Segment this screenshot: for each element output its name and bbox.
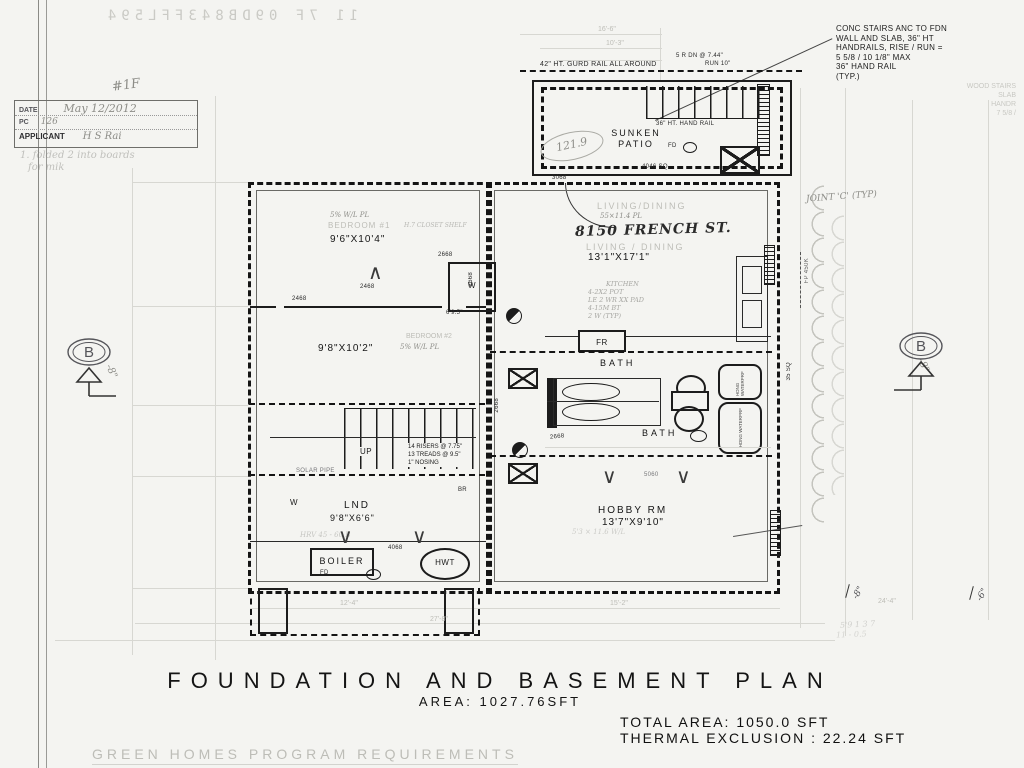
thermal-exclusion: THERMAL EXCLUSION : 22.24 SFT (620, 730, 906, 746)
bed1-closet-note: H.7 CLOSET SHELF (404, 222, 467, 229)
sink (562, 403, 620, 421)
door-tag-2668-vert: 2668 (494, 398, 500, 413)
faint-line: SLAB (946, 91, 1016, 100)
living-dim: 13'1"X17'1" (588, 252, 650, 263)
dim-label: 16'-6" (598, 26, 616, 33)
grid-line (132, 168, 133, 655)
fridge-label: FR (596, 338, 608, 347)
stamp-note: 1. folded 2 into boards (20, 150, 135, 161)
partition-wall (250, 306, 276, 308)
hwt-label: HWT (435, 558, 455, 567)
total-area: TOTAL AREA: 1050.0 SFT (620, 714, 829, 730)
floor-drain (683, 142, 697, 153)
dim-line-bottom (135, 623, 825, 624)
kitchen-note-line: 4-2X2 POT (588, 288, 644, 296)
bath2-label: BATH (642, 428, 677, 438)
note-line: (TYP.) (836, 72, 1011, 82)
dim-label: 27'-8" (430, 616, 448, 623)
faint-corner-note: WOOD STAIRS SLAB HANDR 7 5/8 / (946, 82, 1016, 118)
dim-label: 10'-3" (606, 40, 624, 47)
stair-notes: 14 RISERS @ 7.75" 13 TREADS @ 9.5" 1" NO… (406, 443, 464, 467)
kitchen-note-line: LE 2 WR XX PAD (588, 296, 644, 304)
closet-w: W (448, 262, 496, 312)
stamp-note: for mik (28, 162, 64, 173)
bed1-pencil-note: 5% W/L PL (330, 211, 369, 219)
hobby-dim: 13'7"X9'10" (602, 517, 664, 528)
note-line: 36" HAND RAIL (836, 62, 1011, 72)
room-label-sunken-patio: SUNKEN PATIO (596, 128, 676, 150)
bath1-label: BATH (600, 358, 635, 368)
dim-line-top (520, 34, 662, 35)
hobby-wall (490, 455, 772, 457)
footing-line (478, 588, 480, 636)
kitchen-appliance (742, 300, 762, 328)
section-letter: B (916, 338, 926, 355)
approval-stamp: DATE May 12/2012 PC 126 APPLICANT H S Ra… (14, 100, 198, 148)
toilet-bowl (674, 406, 704, 432)
inner-wall-line (256, 190, 480, 582)
stair-note-line: 13 TREADS @ 9.5" (408, 451, 462, 459)
joist-chevron: ∨ (412, 530, 427, 544)
stair-note-line: 1" NOSING (408, 459, 462, 467)
drawing-area: AREA: 1027.76SFT (130, 694, 870, 709)
section-marker-b-left: B (62, 336, 118, 402)
door-tag-2468: 2468 (292, 296, 307, 302)
stamp-applicant-value: H S Rai (83, 131, 122, 142)
bed2-dim: 9'8"X10'2" (318, 343, 373, 354)
patio-name-line: PATIO (596, 139, 676, 150)
lnd-name: LND (344, 500, 370, 511)
joist-chevron: ∨ (602, 470, 617, 484)
bed1-ghost-label: BEDROOM #1 (328, 221, 390, 230)
door-tag-2468: 2468 (360, 284, 375, 290)
window-tag-5060: 5060 (644, 472, 659, 478)
faint-line: WOOD STAIRS (946, 82, 1016, 91)
sq-tag: 35 SQ (786, 362, 792, 381)
shower-text: HDNG WATERPRF (735, 368, 745, 396)
note-line: WALL AND SLAB, 36" HT (836, 34, 1011, 44)
dim-tick (660, 28, 661, 82)
floor-drain-label: FD (320, 570, 329, 576)
dim-tick (969, 586, 974, 600)
joist-chevron: ∨ (676, 470, 691, 484)
boiler-room-wall (250, 541, 486, 542)
guard-rail-label: 42" HT. GURD RAIL ALL AROUND (540, 61, 657, 68)
grid-line (988, 100, 989, 620)
door-chevron: ∧ (368, 266, 383, 280)
door-tag-2668: 2668 (438, 252, 453, 258)
wall-hatch (757, 84, 770, 156)
dim-line-bottom (55, 640, 835, 641)
dim-label: 24'-4" (878, 598, 896, 605)
ext-line (132, 182, 248, 183)
revision-cloud (818, 215, 844, 495)
door-tag-3068: 3068 (552, 175, 567, 181)
pilaster (258, 588, 288, 634)
fp-tag: FP 450K (804, 258, 810, 283)
hatched-pier (720, 146, 760, 174)
stamp-date-value: May 12/2012 (64, 102, 137, 115)
patio-run-note: RUN 10" (705, 61, 731, 67)
shower-stall: HDNG WATERPRF (718, 364, 762, 400)
stair-wall (249, 403, 485, 405)
door-tag-4068: 4068 (388, 545, 403, 551)
lnd-wall (249, 474, 485, 476)
lnd-br-tag: BR (458, 487, 467, 493)
ext-line (132, 476, 248, 477)
dim-label: 12'-4" (340, 600, 358, 607)
hobby-pencil-note: 5'3 × 11.6 W/L (572, 528, 625, 536)
patio-name-line: SUNKEN (596, 128, 676, 139)
ext-line (132, 588, 248, 589)
bath-top-wall (490, 351, 772, 353)
faint-line: 7 5/8 / (946, 109, 1016, 118)
note-line: HANDRAILS, RISE / RUN = (836, 43, 1011, 53)
bed2-pencil-note: 5% W/L PL (400, 343, 439, 351)
pencil-scribble: 5'9 1 3 7 (840, 619, 876, 630)
floor-drain-label: FD (668, 143, 677, 149)
blueprint-sheet: 11 7F 09DB843FFL594 16'-6" 10'-3" CONC S… (0, 0, 1024, 768)
floor-drain (366, 569, 381, 580)
note-line: CONC STAIRS ANC TO FDN (836, 24, 1011, 34)
pilaster (444, 588, 474, 634)
handrail-label: 36" HT. HAND RAIL (656, 121, 714, 127)
footing-line (250, 634, 480, 636)
grid-line (845, 88, 846, 636)
bath2-drain (690, 430, 707, 442)
stairs-up-label: UP (358, 447, 374, 456)
wall-hatch (770, 510, 781, 556)
shower-text: HDNG WATERPRF (738, 408, 743, 447)
stamp-pc-label: PC (19, 119, 29, 126)
bath-divider-line (547, 401, 659, 402)
door-tag-2668-vert: 2668 (468, 272, 474, 287)
partition-wall (284, 306, 442, 308)
stamp-applicant-label: APPLICANT (19, 132, 65, 141)
dim-label: 15'-2" (610, 600, 628, 607)
footing-line (250, 588, 252, 636)
boiler-label: BOILER (319, 556, 364, 566)
dim-line-top (540, 48, 662, 49)
stair-note-line: 14 RISERS @ 7.75" (408, 443, 462, 451)
living-ghost-label: LIVING / DINING (586, 242, 685, 252)
hand-elevation-mark: -8" (851, 585, 866, 601)
hatched-pier (508, 463, 538, 484)
dim-line-bottom (250, 608, 780, 609)
footer-ghost-title: GREEN HOMES PROGRAM REQUIREMENTS (92, 746, 518, 765)
sink (562, 383, 620, 401)
pencil-area-value: 121.9 (555, 135, 589, 154)
patio-riser-note: 5 R DN @ 7.44" (676, 53, 723, 59)
fp-bracket (800, 252, 801, 308)
living-ghost-label: LIVING/DINING (597, 201, 687, 211)
ext-line (132, 306, 248, 307)
kitchen-note-line: 4-15M BT (588, 304, 644, 312)
partition-wall (466, 306, 486, 308)
bed1-dim: 9'6"X10'4" (330, 234, 385, 245)
patio-stairs (646, 86, 764, 119)
note-line: 5 5/8 / 10 1/8" MAX (836, 53, 1011, 63)
guard-rail-line (520, 70, 802, 72)
section-letter: B (84, 344, 94, 361)
drawing-title: FOUNDATION AND BASEMENT PLAN (130, 668, 870, 694)
grid-line (215, 96, 216, 660)
kitchen-note-line: KITCHEN (606, 280, 644, 288)
section-marker-b-right: B (892, 330, 948, 396)
hatched-pier (508, 368, 538, 389)
pencil-scribble: 11 - 0.5 (836, 629, 867, 639)
hobby-top-line (545, 447, 771, 448)
wall-hatch (764, 245, 775, 285)
kitchen-notes: KITCHEN 4-2X2 POT LE 2 WR XX PAD 4-15M B… (588, 280, 644, 320)
kitchen-note-line: 2 W (TYP) (588, 312, 644, 320)
hwt-tank: HWT (420, 548, 470, 580)
hobby-name: HOBBY RM (598, 505, 667, 516)
tag-6-9-5: 6'9.5" (446, 310, 463, 316)
kitchen-appliance (742, 266, 762, 294)
ext-line (132, 405, 248, 406)
patio-area-tag: 4046 SQ (642, 164, 668, 170)
stamp-date-label: DATE (19, 107, 38, 114)
fridge-box: FR (578, 330, 626, 352)
keynote-symbol (506, 308, 522, 324)
living-pencil-note: 55×11.4 PL (600, 212, 642, 220)
bleedthrough-text: 11 7F 09DB843FFL594 (58, 8, 358, 24)
conc-stairs-note: CONC STAIRS ANC TO FDN WALL AND SLAB, 36… (836, 24, 1011, 81)
hand-hash: #1F (111, 76, 141, 95)
bed2-ghost-label: BEDROOM #2 (406, 333, 452, 340)
joist-chevron: ∨ (338, 530, 353, 544)
lnd-w-label: W (290, 498, 298, 507)
stamp-pc-value: 126 (41, 117, 58, 127)
stair-landing-line (270, 437, 476, 438)
faint-line: HANDR (946, 100, 1016, 109)
lnd-dim: 9'8"X6'6" (330, 513, 375, 523)
